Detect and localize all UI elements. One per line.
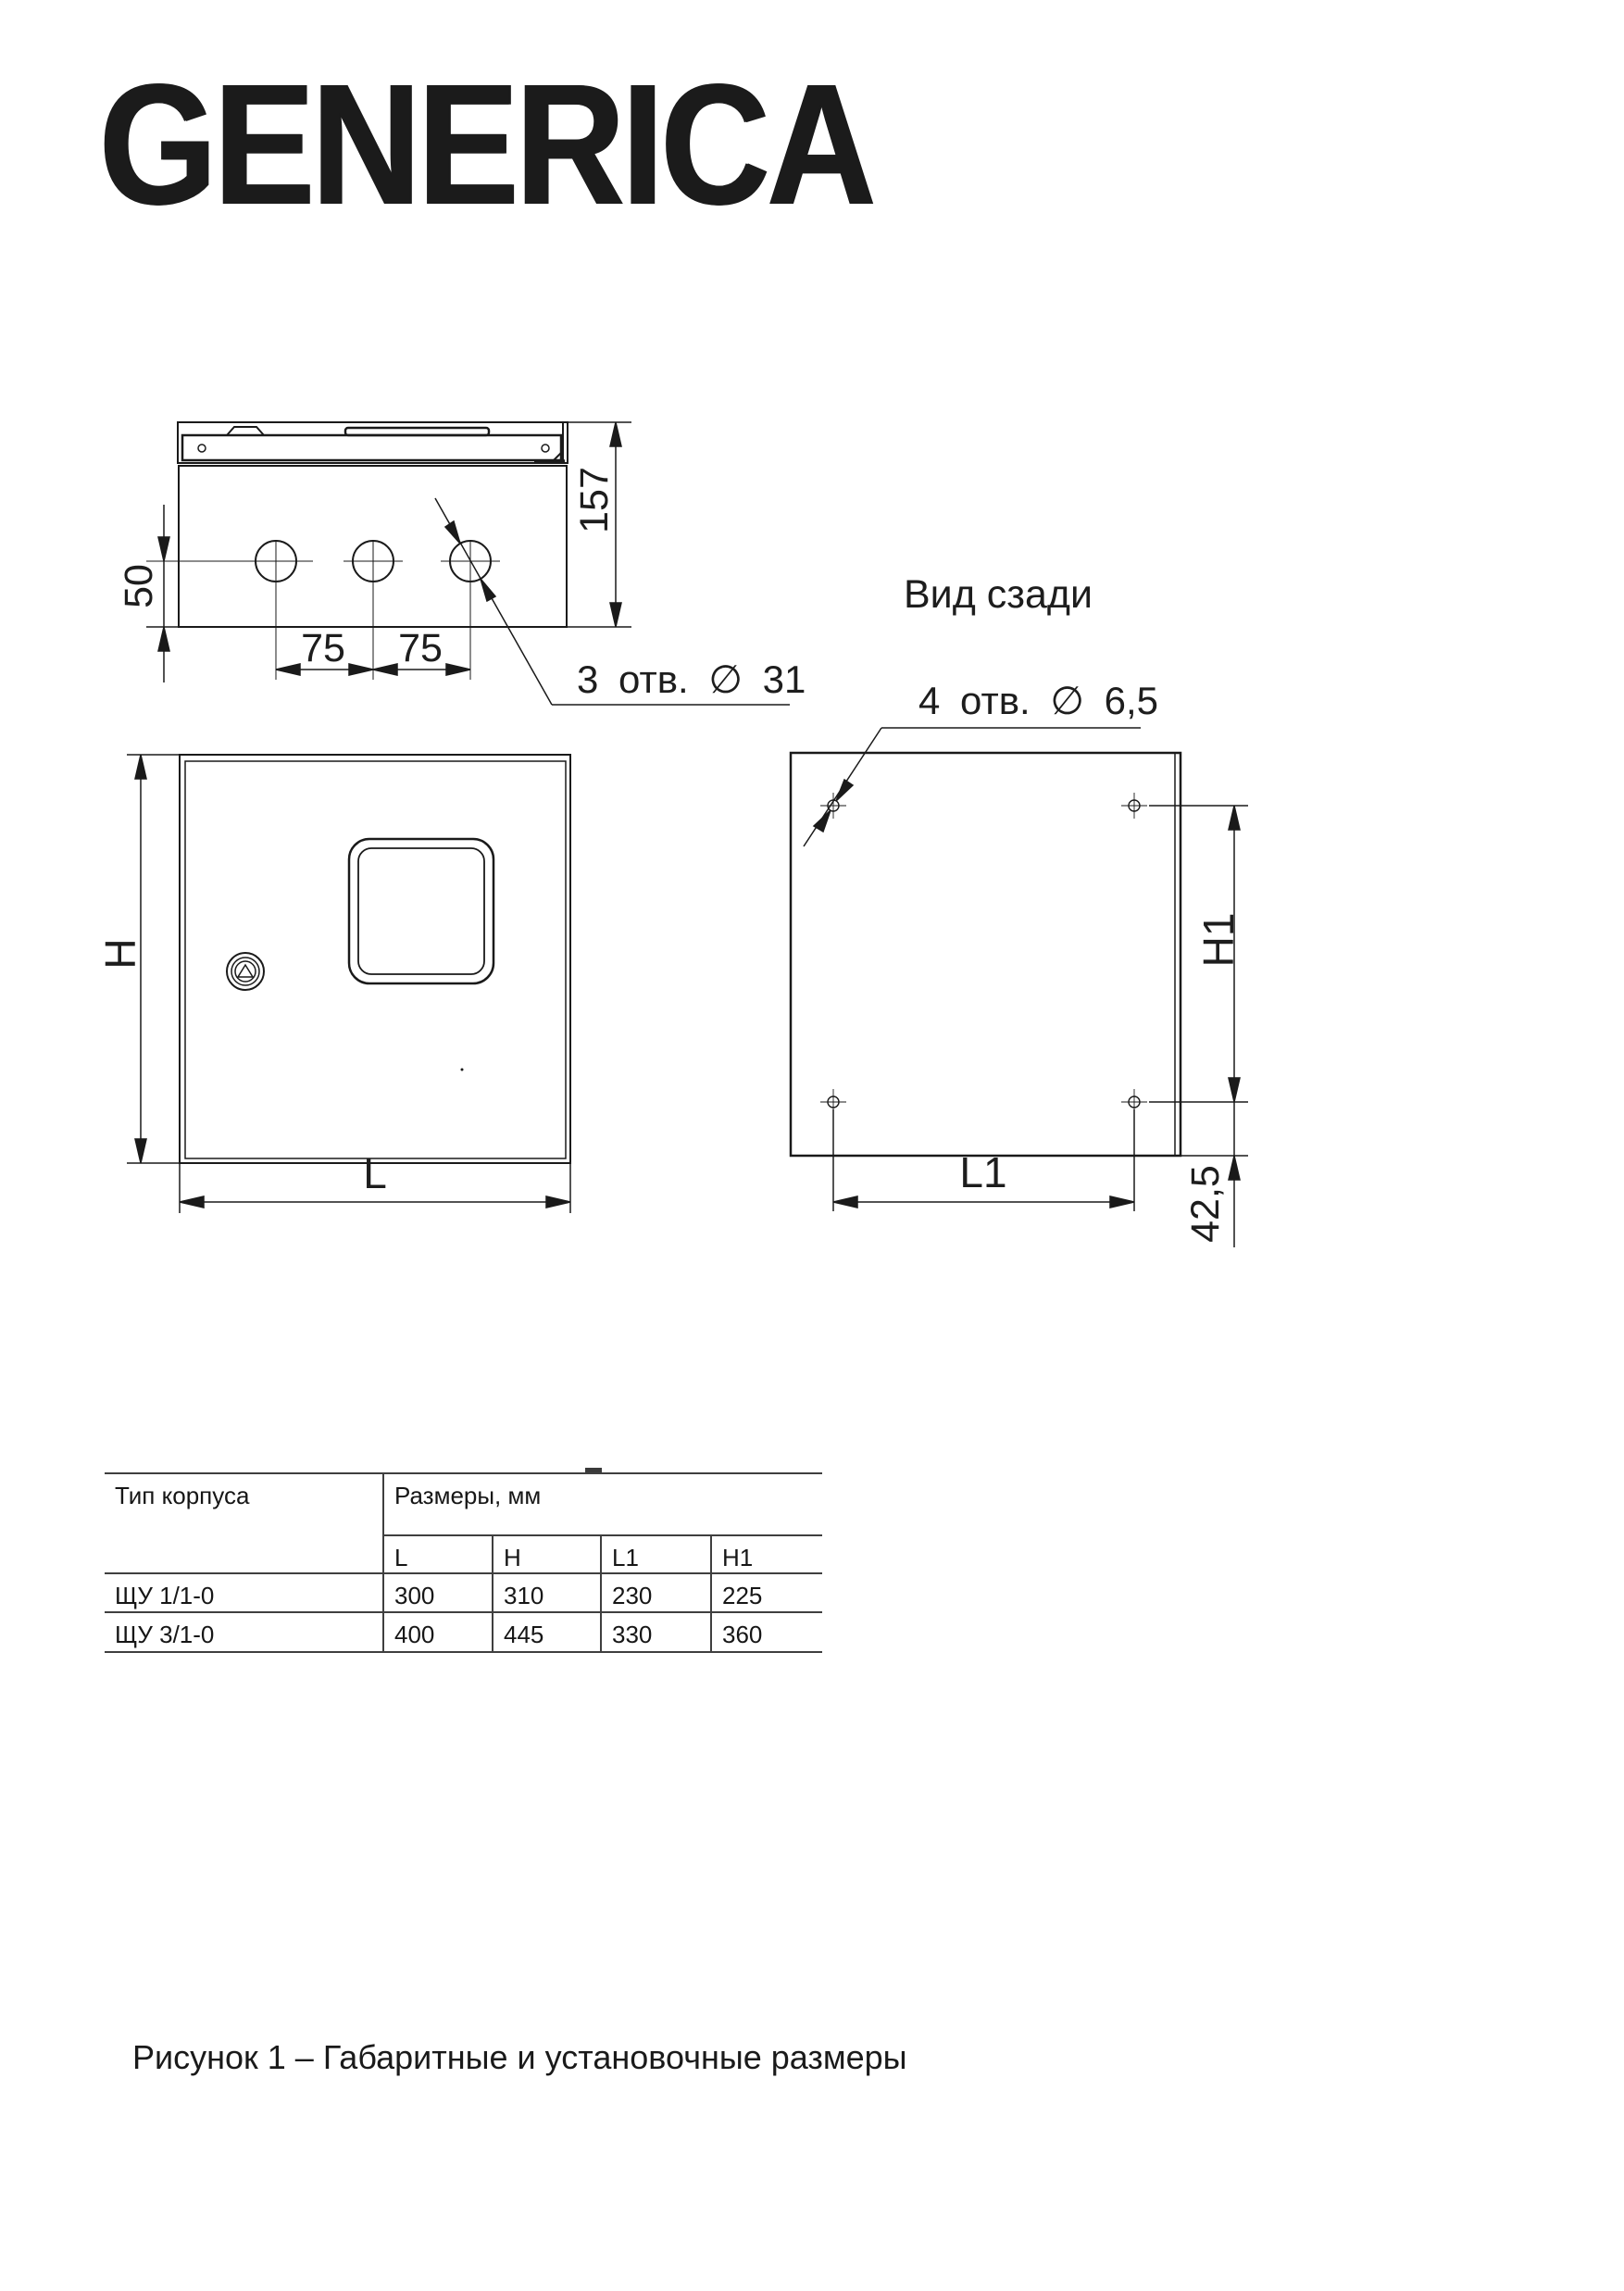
rear-view-title: Вид сзади [904, 575, 1093, 615]
top-view-hole-spacing-dim-2: 75 [393, 629, 448, 669]
table-cell-value: 445 [493, 1612, 601, 1652]
table-subheader-H: H [493, 1535, 601, 1573]
table-cell-value: 310 [493, 1573, 601, 1612]
table-subheader-L1: L1 [601, 1535, 711, 1573]
rear-view-width-dim: L1 [956, 1151, 1011, 1194]
table-cell-value: 400 [383, 1612, 493, 1652]
enclosure-rear-body [791, 753, 1181, 1156]
table-col-group-header: Размеры, мм [383, 1473, 822, 1535]
rear-view-drawing [791, 753, 1181, 1156]
top-view-holes-note: 3 отв. ∅ 31 [577, 660, 806, 699]
figure-caption: Рисунок 1 – Габаритные и установочные ра… [132, 2041, 907, 2074]
table-subheader-L: L [383, 1535, 493, 1573]
table-header-row: Тип корпуса Размеры, мм [105, 1473, 822, 1535]
door-top-edge [182, 435, 561, 460]
table-cell-value: 225 [711, 1573, 822, 1612]
top-view-hole-spacing-dim-1: 75 [295, 629, 351, 669]
table-subheader-H1: H1 [711, 1535, 822, 1573]
door-window-outer [349, 839, 493, 983]
front-view-height-dim: H [99, 908, 142, 1000]
latch-tab [227, 427, 264, 435]
table-cell-value: 230 [601, 1573, 711, 1612]
top-view-depth-dim: 157 [573, 444, 616, 556]
top-view-hole-offset-dim: 50 [118, 540, 160, 632]
hinge-bar [345, 428, 489, 435]
rear-view-holes-note: 4 отв. ∅ 6,5 [918, 682, 1158, 720]
door-lock [227, 953, 264, 990]
table-cell-value: 300 [383, 1573, 493, 1612]
enclosure-door [185, 761, 566, 1158]
front-view-dimensions [127, 755, 570, 1213]
mounting-holes [820, 793, 1147, 1115]
table-row: ЩУ 1/1-0 300 310 230 225 [105, 1573, 822, 1612]
table-cell-value: 360 [711, 1612, 822, 1652]
front-view-width-dim: L [356, 1152, 394, 1195]
door-window-inner [358, 848, 484, 974]
document-page: GENERICA [0, 0, 1624, 2291]
table-cell-value: 330 [601, 1612, 711, 1652]
dimensions-table: Тип корпуса Размеры, мм L H L1 H1 ЩУ 1/1… [105, 1472, 822, 1653]
table-cell-type: ЩУ 1/1-0 [105, 1573, 383, 1612]
screw-left [198, 444, 206, 452]
rear-view-height-dim: H1 [1197, 894, 1240, 986]
technical-drawing-canvas [0, 0, 1624, 2291]
table-col-type-header: Тип корпуса [105, 1473, 383, 1573]
table-row: ЩУ 3/1-0 400 445 330 360 [105, 1612, 822, 1652]
rear-view-bottom-offset-dim: 42,5 [1184, 1148, 1227, 1259]
table-cell-type: ЩУ 3/1-0 [105, 1612, 383, 1652]
front-view-drawing [180, 755, 570, 1163]
screw-right [542, 444, 549, 452]
top-view-drawing [146, 422, 568, 680]
